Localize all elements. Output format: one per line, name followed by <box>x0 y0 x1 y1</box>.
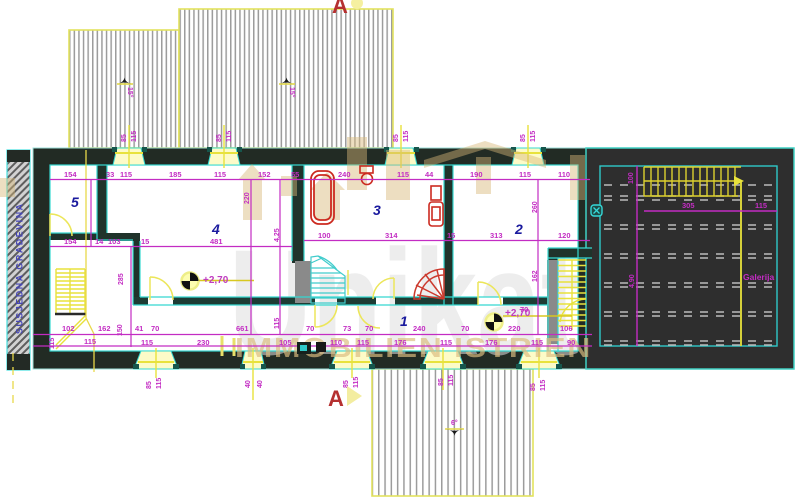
svg-text:70: 70 <box>151 324 159 333</box>
svg-text:85: 85 <box>146 381 153 389</box>
svg-text:41: 41 <box>135 324 143 333</box>
svg-text:115: 115 <box>531 338 543 347</box>
svg-text:SUSJEDNA GRAĐEVINA: SUSJEDNA GRAĐEVINA <box>15 202 25 334</box>
svg-text:115: 115 <box>755 201 767 210</box>
svg-text:314: 314 <box>385 231 398 240</box>
svg-text:4,90: 4,90 <box>629 274 636 288</box>
svg-text:115: 115 <box>156 378 163 389</box>
svg-text:A: A <box>328 386 344 411</box>
svg-text:5: 5 <box>71 194 79 210</box>
svg-text:115: 115 <box>403 131 410 142</box>
svg-text:176: 176 <box>485 338 498 347</box>
svg-text:220: 220 <box>508 324 521 333</box>
svg-text:260: 260 <box>532 201 539 213</box>
svg-text:115: 115 <box>120 170 132 179</box>
svg-text:240: 240 <box>338 170 351 179</box>
svg-text:305: 305 <box>682 201 695 210</box>
svg-text:85: 85 <box>530 383 537 391</box>
svg-text:70: 70 <box>461 324 469 333</box>
svg-text:85: 85 <box>216 134 223 142</box>
svg-text:55: 55 <box>291 170 299 179</box>
svg-text:IMMOBILIEN ISTRIEN: IMMOBILIEN ISTRIEN <box>235 332 592 363</box>
svg-text:162: 162 <box>98 324 111 333</box>
svg-text:85: 85 <box>393 134 400 142</box>
svg-text:85: 85 <box>343 380 350 388</box>
svg-text:115: 115 <box>353 377 360 388</box>
svg-text:15: 15 <box>141 237 149 246</box>
svg-text:15°: 15° <box>288 87 296 98</box>
svg-text:115: 115 <box>49 338 56 349</box>
svg-text:73: 73 <box>343 324 351 333</box>
svg-text:115: 115 <box>519 170 531 179</box>
svg-text:115: 115 <box>274 318 281 329</box>
svg-text:661: 661 <box>236 324 249 333</box>
svg-text:70: 70 <box>306 324 314 333</box>
svg-text:220: 220 <box>244 192 251 204</box>
svg-text:115: 115 <box>84 337 96 346</box>
svg-text:40: 40 <box>257 380 264 388</box>
svg-text:14: 14 <box>95 237 104 246</box>
svg-text:152: 152 <box>258 170 271 179</box>
svg-text:115: 115 <box>131 131 138 142</box>
svg-text:120: 120 <box>558 231 571 240</box>
svg-text:44: 44 <box>425 170 434 179</box>
svg-text:115: 115 <box>448 375 455 386</box>
svg-text:4: 4 <box>211 221 220 237</box>
svg-text:190: 190 <box>470 170 483 179</box>
svg-text:176: 176 <box>394 338 407 347</box>
svg-text:115: 115 <box>226 131 233 142</box>
svg-text:230: 230 <box>197 338 210 347</box>
svg-text:3: 3 <box>373 202 381 218</box>
svg-text:90: 90 <box>567 338 575 347</box>
svg-text:154: 154 <box>64 237 77 246</box>
svg-text:162: 162 <box>532 270 539 282</box>
svg-text:100: 100 <box>628 172 635 184</box>
svg-text:115: 115 <box>397 170 409 179</box>
svg-text:150: 150 <box>117 324 124 336</box>
svg-text:70: 70 <box>520 305 528 314</box>
svg-text:115: 115 <box>530 131 537 142</box>
svg-text:185: 185 <box>169 170 182 179</box>
svg-text:154: 154 <box>64 170 77 179</box>
svg-text:2: 2 <box>514 221 523 237</box>
svg-text:105: 105 <box>279 338 292 347</box>
svg-text:115: 115 <box>540 380 547 391</box>
svg-text:102: 102 <box>62 324 75 333</box>
svg-text:106: 106 <box>560 324 573 333</box>
svg-text:6°: 6° <box>451 419 458 427</box>
svg-text:100: 100 <box>318 231 331 240</box>
svg-text:15°: 15° <box>126 87 134 98</box>
svg-text:15: 15 <box>447 231 455 240</box>
svg-text:103: 103 <box>108 237 121 246</box>
svg-text:33: 33 <box>106 170 114 179</box>
svg-text:240: 240 <box>413 324 426 333</box>
svg-text:A: A <box>332 0 348 18</box>
svg-text:40: 40 <box>245 380 252 388</box>
svg-text:115: 115 <box>440 338 452 347</box>
svg-text:Galerija: Galerija <box>743 272 774 282</box>
svg-text:+2,70: +2,70 <box>203 275 229 286</box>
svg-text:115: 115 <box>357 338 369 347</box>
svg-text:115: 115 <box>141 338 153 347</box>
svg-text:1: 1 <box>400 313 408 329</box>
svg-text:313: 313 <box>490 231 503 240</box>
svg-text:110: 110 <box>330 338 342 347</box>
svg-text:285: 285 <box>118 273 125 285</box>
svg-text:4,25: 4,25 <box>274 228 281 242</box>
svg-text:85: 85 <box>121 134 128 142</box>
svg-text:115: 115 <box>214 170 226 179</box>
svg-text:85: 85 <box>438 378 445 386</box>
svg-text:70: 70 <box>365 324 373 333</box>
svg-text:85: 85 <box>520 134 527 142</box>
svg-text:110: 110 <box>558 170 570 179</box>
svg-text:481: 481 <box>210 237 223 246</box>
